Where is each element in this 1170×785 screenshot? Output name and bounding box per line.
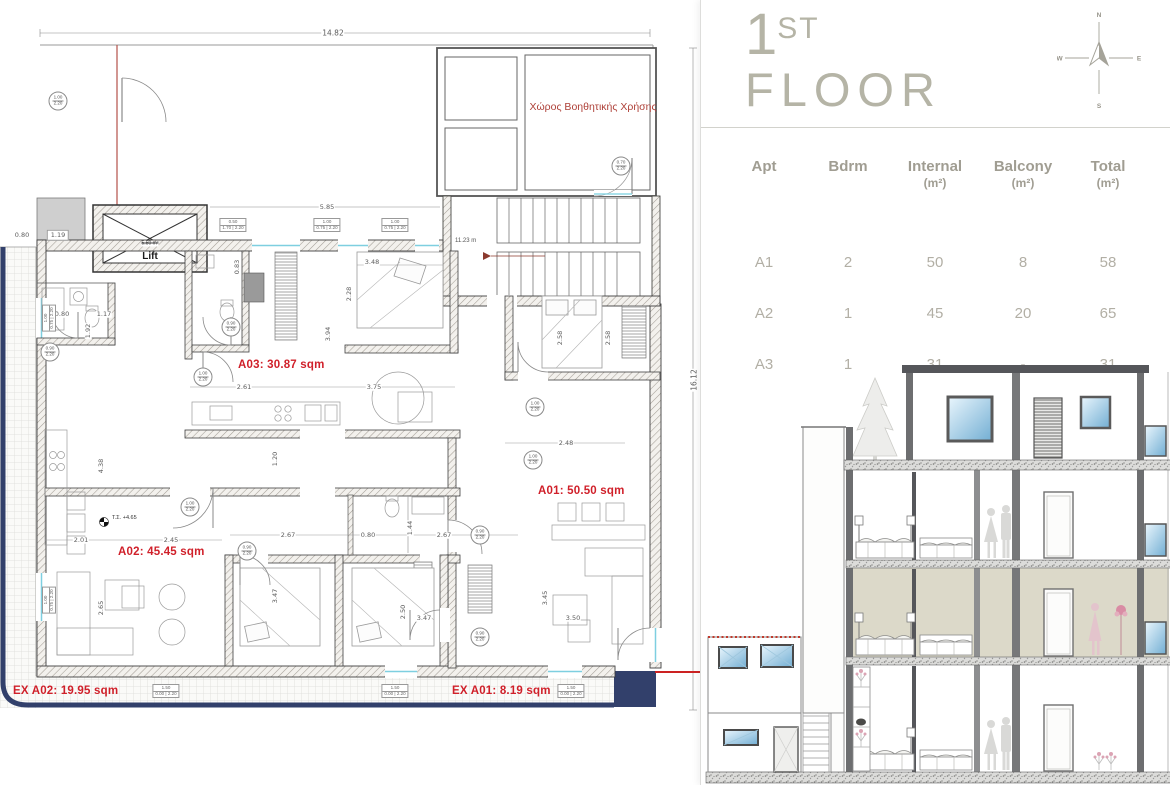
svg-text:S: S xyxy=(1097,103,1102,110)
dim-label: 2.01 xyxy=(73,537,89,544)
apartment-label-a03: A03: 30.87 sqm xyxy=(238,360,325,372)
dim-label: 0.80 xyxy=(360,532,376,539)
svg-text:N: N xyxy=(1097,12,1102,19)
dim-label: 5.85 xyxy=(319,204,335,211)
col-header-balcony: Balcony(m²) xyxy=(981,158,1065,190)
dim-label: 1.92 xyxy=(85,323,92,339)
door-size-badge: 0.902.20 xyxy=(238,542,257,561)
dim-label: 0.80 xyxy=(14,232,30,239)
dim-label: 2.58 xyxy=(557,330,564,346)
cell-internal: 45 xyxy=(889,305,981,322)
dim-label: 2.50 xyxy=(400,604,407,620)
floor-number-suffix: ST xyxy=(777,12,819,45)
apartment-table: Apt Bdrm Internal(m²) Balcony(m²) Total(… xyxy=(721,158,1153,373)
table-row: A1 2 50 8 58 xyxy=(721,254,1153,271)
dim-label: 0.83 xyxy=(234,259,241,275)
window-size-box: 1.500.00 | 2.20 xyxy=(557,684,584,698)
dim-label: 2.61 xyxy=(236,384,252,391)
lift-label: Lift xyxy=(142,252,158,262)
col-header-total: Total(m²) xyxy=(1065,158,1151,190)
window-size-box: 1.000.75 | 2.20 xyxy=(42,304,56,331)
dim-label: 4.38 xyxy=(98,458,105,474)
balcony-label-ex-a01: EX A01: 8.19 sqm xyxy=(452,686,551,698)
page-title: 1ST FLOOR xyxy=(745,6,942,113)
cell-total: 58 xyxy=(1065,254,1151,271)
dim-label: 2.48 xyxy=(558,440,574,447)
dim-label: 1.19 xyxy=(47,230,69,241)
balcony-label-ex-a02: EX A02: 19.95 sqm xyxy=(13,686,118,698)
col-header-apt: Apt xyxy=(721,158,807,190)
svg-text:W: W xyxy=(1057,56,1063,63)
apartment-label-a02: A02: 45.45 sqm xyxy=(118,547,205,559)
door-size-badge: 1.002.20 xyxy=(49,92,68,111)
cell-apt: A1 xyxy=(721,254,807,271)
floor-word: FLOOR xyxy=(745,66,942,113)
dim-label: 3.75 xyxy=(366,384,382,391)
lift-area-label: 5.50 m² xyxy=(142,242,159,247)
window-size-box: 1.500.00 | 2.20 xyxy=(381,684,408,698)
building-section-drawing xyxy=(701,360,1170,785)
cell-total: 65 xyxy=(1065,305,1151,322)
cell-apt: A2 xyxy=(721,305,807,322)
floor-plan-drawing xyxy=(0,0,700,785)
dim-label: 3.50 xyxy=(565,615,581,622)
dim-label: 3.47 xyxy=(272,588,279,604)
window-size-box: 1.500.00 | 2.20 xyxy=(152,684,179,698)
window-size-box: 1.000.75 | 2.20 xyxy=(313,218,340,232)
dim-label: 2.58 xyxy=(605,330,612,346)
dim-label: 2.67 xyxy=(280,532,296,539)
info-panel: 1ST FLOOR N S W E Apt Bdrm Internal(m²) xyxy=(700,0,1170,785)
door-size-badge: 0.702.20 xyxy=(612,157,631,176)
door-size-badge: 1.002.20 xyxy=(181,498,200,517)
cell-bdrm: 2 xyxy=(807,254,889,271)
window-size-box: 1.000.75 | 2.20 xyxy=(42,586,56,613)
dim-label: 2.67 xyxy=(436,532,452,539)
svg-text:E: E xyxy=(1137,56,1142,63)
table-header-row: Apt Bdrm Internal(m²) Balcony(m²) Total(… xyxy=(721,158,1153,190)
dim-label: 2.65 xyxy=(98,600,105,616)
door-size-badge: 1.002.20 xyxy=(526,398,545,417)
table-row: A2 1 45 20 65 xyxy=(721,305,1153,322)
panel-divider xyxy=(701,127,1170,128)
door-size-badge: 0.902.20 xyxy=(41,343,60,362)
apartment-label-a01: A01: 50.50 sqm xyxy=(538,486,625,498)
dim-label: 3.45 xyxy=(542,590,549,606)
cell-balcony: 20 xyxy=(981,305,1065,322)
col-header-internal: Internal(m²) xyxy=(889,158,981,190)
dim-label: 2.45 xyxy=(163,537,179,544)
door-size-badge: 1.002.20 xyxy=(524,451,543,470)
compass-icon: N S W E xyxy=(1057,6,1147,116)
dim-label: 16.12 xyxy=(690,368,698,391)
dim-label: 2.28 xyxy=(346,286,353,302)
col-header-bdrm: Bdrm xyxy=(807,158,889,190)
dim-label: 0.80 xyxy=(54,311,70,318)
stair-area-label: 11.23 m xyxy=(455,238,476,244)
dim-label: 14.82 xyxy=(321,29,344,37)
door-size-badge: 1.002.20 xyxy=(194,368,213,387)
cell-internal: 50 xyxy=(889,254,981,271)
dim-label: 3.94 xyxy=(325,326,332,342)
window-size-box: 1.000.75 | 2.20 xyxy=(381,218,408,232)
dim-label: 1.17 xyxy=(96,311,112,318)
utility-room-label: Χώρος Βοηθητικής Χρήσης xyxy=(529,102,656,113)
drawing-sheet: 14.82 16.12 5.85 0.80 1.19 11.23 m 0.83 … xyxy=(0,0,1170,785)
window-size-box: 0.501.70 | 2.20 xyxy=(219,218,246,232)
dim-label: 3.47 xyxy=(416,615,432,622)
cell-bdrm: 1 xyxy=(807,305,889,322)
dim-label: 1.20 xyxy=(272,451,279,467)
floor-number: 1 xyxy=(745,2,777,67)
door-size-badge: 0.902.20 xyxy=(471,526,490,545)
cell-balcony: 8 xyxy=(981,254,1065,271)
level-marker-label: Τ.Σ. +4.65 xyxy=(112,516,137,522)
dim-label: 3.48 xyxy=(364,259,380,266)
door-size-badge: 0.902.20 xyxy=(471,628,490,647)
door-size-badge: 0.902.20 xyxy=(222,318,241,337)
dim-label: 1.44 xyxy=(407,520,414,536)
